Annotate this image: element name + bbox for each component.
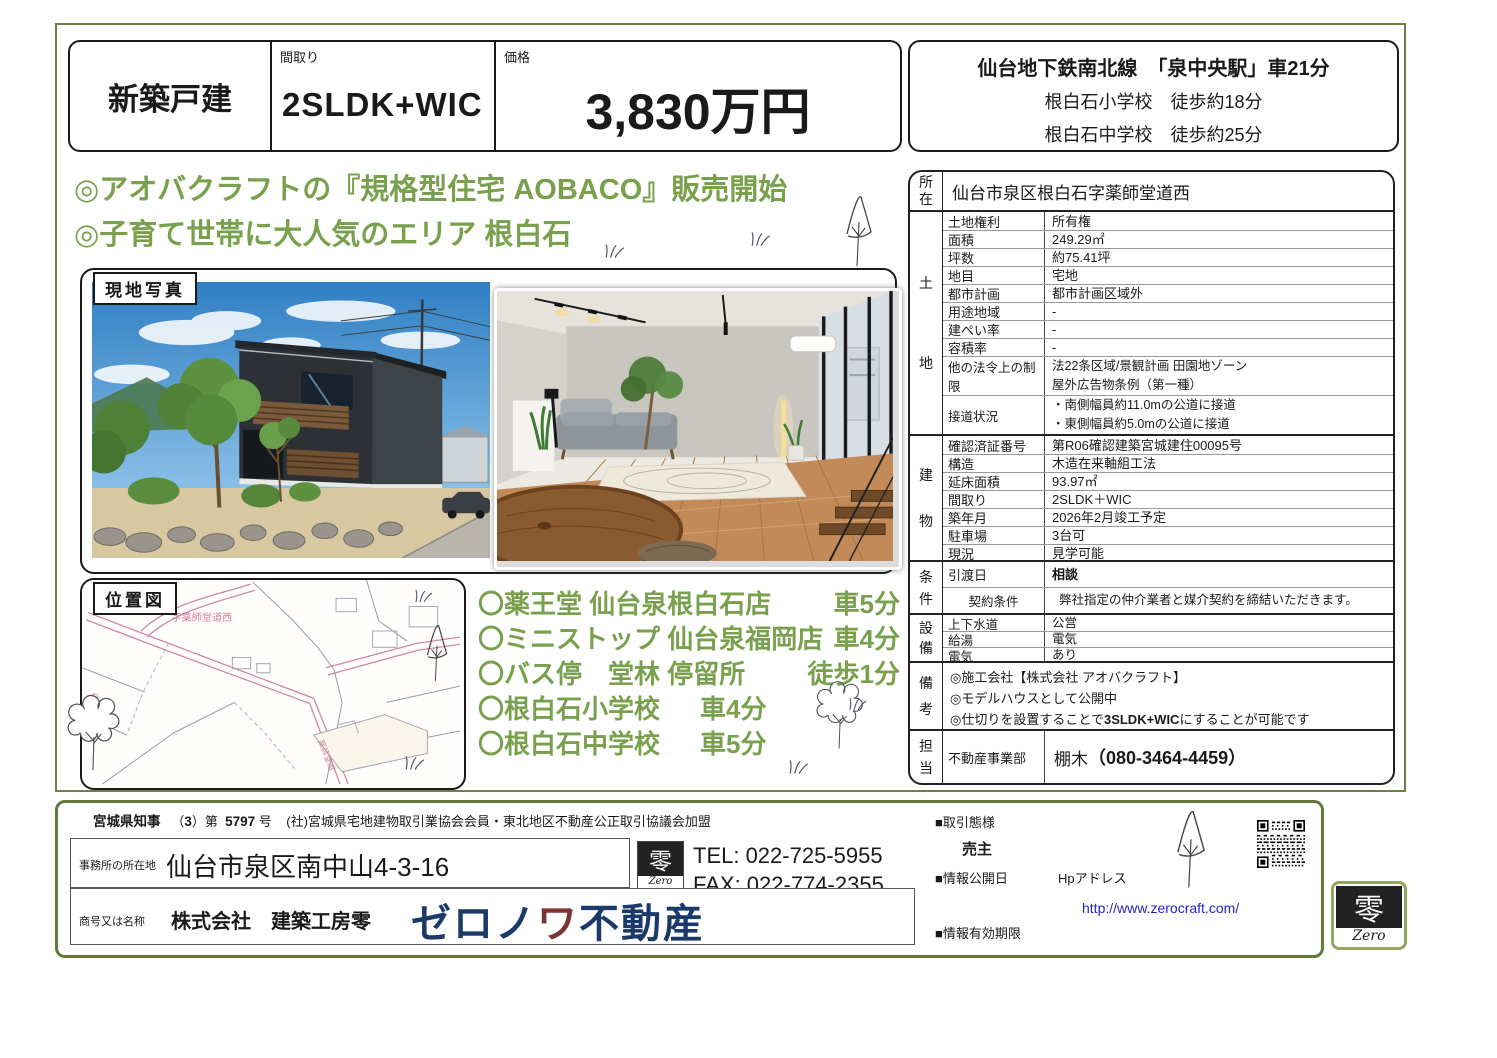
spec-value: - bbox=[1045, 303, 1393, 320]
spec-value: 木造在来軸組工法 bbox=[1045, 455, 1393, 472]
spec-value: 2026年2月竣工予定 bbox=[1045, 509, 1393, 526]
nearby-time: 車4分 bbox=[700, 689, 766, 726]
spec-key: 土地権利 bbox=[943, 212, 1045, 230]
tree-sketch-icon bbox=[1168, 804, 1214, 892]
floorplan-value: 2SLDK+WIC bbox=[282, 86, 483, 124]
spec-key: 給湯 bbox=[943, 632, 1045, 647]
zero-kanji: 零 bbox=[1336, 886, 1402, 928]
nearby-name: 〇バス停 堂林 停留所 bbox=[478, 659, 745, 689]
spec-value: - bbox=[1045, 339, 1393, 356]
grass-sketch-icon bbox=[414, 590, 434, 602]
info-date-label: ■情報公開日 bbox=[935, 868, 1008, 887]
spec-value: 第R06確認建築宮城建住00095号 bbox=[1045, 436, 1393, 454]
spec-value: - bbox=[1045, 321, 1393, 338]
zero-logo-small: 零 Zero bbox=[637, 841, 684, 890]
floorplan-cell: 間取り 2SLDK+WIC bbox=[272, 42, 496, 150]
expiry-label: ■情報有効期限 bbox=[935, 923, 1021, 942]
spec-key: 引渡日 bbox=[943, 562, 1045, 587]
spec-key: 築年月 bbox=[943, 509, 1045, 526]
grass-sketch-icon bbox=[404, 756, 426, 770]
zero-logo-large: 零 Zero bbox=[1331, 881, 1407, 950]
site-photo-tag: 現地写真 bbox=[93, 272, 197, 305]
tree-sketch-icon bbox=[812, 680, 870, 754]
price-value: 3,830万円 bbox=[496, 72, 900, 144]
spec-key: 都市計画 bbox=[943, 285, 1045, 302]
nearby-time: 車5分 bbox=[834, 584, 900, 621]
membership-text: (社)宮城県宅地建物取引業協会会員・東北地区不動産公正取引協議会加盟 bbox=[286, 814, 711, 829]
access-line-station: 仙台地下鉄南北線 「泉中央駅」車21分 bbox=[910, 52, 1397, 81]
flyer-page: 新築戸建 間取り 2SLDK+WIC 価格 3,830万円 仙台地下鉄南北線 「… bbox=[0, 0, 1497, 1058]
nearby-time: 車4分 bbox=[834, 619, 900, 656]
tree-sketch-icon bbox=[838, 190, 880, 270]
floorplan-label: 間取り bbox=[280, 47, 319, 66]
spec-group-remarks: 備考 ◎施工会社【株式会社 アオバクラフト】 ◎モデルハウスとして公開中 ◎仕切… bbox=[910, 661, 1393, 729]
spec-location-value: 仙台市泉区根白石字薬師堂道西 bbox=[943, 172, 1393, 210]
spec-group-land: 土地 土地権利所有権 面積249.29㎡ 坪数約75.41坪 地目宅地 都市計画… bbox=[910, 210, 1393, 434]
spec-value: 弊社指定の仲介業者と媒介契約を締結いただきます。 bbox=[1045, 588, 1393, 613]
spec-key: 用途地域 bbox=[943, 303, 1045, 320]
list-item: 〇薬王堂 仙台泉根白石店 車5分 bbox=[478, 584, 900, 619]
header-box: 新築戸建 間取り 2SLDK+WIC 価格 3,830万円 bbox=[68, 40, 902, 152]
qr-code bbox=[1257, 820, 1305, 868]
interior-photo bbox=[497, 291, 893, 561]
website-link[interactable]: http://www.zerocraft.com/ bbox=[1082, 900, 1239, 916]
deal-type-value: 売主 bbox=[962, 838, 992, 859]
access-line-elementary: 根白石小学校 徒歩約18分 bbox=[910, 88, 1397, 114]
nearby-name: 〇薬王堂 仙台泉根白石店 bbox=[478, 589, 771, 619]
spec-value: 法22条区域/景観計画 田園地ゾーン 屋外広告物条例（第一種） bbox=[1045, 357, 1393, 395]
remarks-text: ◎施工会社【株式会社 アオバクラフト】 ◎モデルハウスとして公開中 ◎仕切りを設… bbox=[943, 663, 1393, 729]
brand-logo-text: ゼロノワ不動産 bbox=[411, 891, 705, 949]
list-item: 〇ミニストップ 仙台泉福岡店 車4分 bbox=[478, 619, 900, 654]
spec-key: 地目 bbox=[943, 267, 1045, 284]
spec-key: 建ぺい率 bbox=[943, 321, 1045, 338]
zero-latin: Zero bbox=[1336, 928, 1402, 946]
office-address-value: 仙台市泉区南中山4-3-16 bbox=[166, 847, 449, 884]
staff-dept: 不動産事業部 bbox=[943, 731, 1045, 783]
grass-sketch-icon bbox=[848, 698, 868, 710]
grass-sketch-icon bbox=[788, 760, 810, 774]
price-label: 価格 bbox=[504, 47, 530, 66]
tree-sketch-icon bbox=[418, 620, 456, 684]
spec-key: 延床面積 bbox=[943, 473, 1045, 490]
remarks-line: ◎モデルハウスとして公開中 bbox=[950, 688, 1393, 709]
location-map-tag: 位置図 bbox=[93, 582, 177, 615]
spec-location-label: 所在 bbox=[919, 174, 934, 208]
company-name-value: 株式会社 建築工房零 bbox=[171, 905, 371, 934]
license-line: 宮城県知事 （3）第 5797 号 (社)宮城県宅地建物取引業協会会員・東北地区… bbox=[93, 810, 711, 830]
spec-value: 3台可 bbox=[1045, 527, 1393, 544]
spec-key: 坪数 bbox=[943, 249, 1045, 266]
group-label: 担当 bbox=[919, 735, 934, 779]
zero-kanji: 零 bbox=[638, 842, 683, 876]
nearby-time: 車5分 bbox=[700, 724, 766, 761]
group-label: 備考 bbox=[919, 670, 934, 722]
spec-key: 構造 bbox=[943, 455, 1045, 472]
access-line-junior-high: 根白石中学校 徒歩約25分 bbox=[910, 121, 1397, 147]
nearby-name: 〇根白石小学校 bbox=[478, 694, 660, 724]
spec-value: 都市計画区域外 bbox=[1045, 285, 1393, 302]
interior-photo-frame bbox=[494, 288, 902, 570]
spec-location-row: 所在 仙台市泉区根白石字薬師堂道西 bbox=[910, 172, 1393, 210]
grass-sketch-icon bbox=[604, 244, 626, 258]
headline-1: ◎アオバクラフトの『規格型住宅 AOBACO』販売開始 bbox=[74, 166, 787, 208]
spec-value: ・南側幅員約11.0mの公道に接道 ・東側幅員約5.0mの公道に接道 bbox=[1045, 396, 1393, 434]
spec-key: 上下水道 bbox=[943, 615, 1045, 631]
spec-value: 相談 bbox=[1045, 562, 1393, 587]
nearby-name: 〇ミニストップ 仙台泉福岡店 bbox=[478, 624, 823, 654]
spec-group-utilities: 設備 上下水道公営 給湯電気 電気あり bbox=[910, 613, 1393, 661]
deal-type-label: ■取引態様 bbox=[935, 812, 995, 831]
company-name-box: 商号又は名称 株式会社 建築工房零 ゼロノワ不動産 bbox=[70, 888, 915, 945]
spec-table: 所在 仙台市泉区根白石字薬師堂道西 土地 土地権利所有権 面積249.29㎡ 坪… bbox=[908, 170, 1395, 785]
group-label: 設備 bbox=[919, 618, 934, 658]
spec-key: 確認済証番号 bbox=[943, 436, 1045, 454]
spec-value: 249.29㎡ bbox=[1045, 231, 1393, 248]
spec-group-staff: 担当 不動産事業部 棚木（080-3464-4459） bbox=[910, 729, 1393, 783]
group-label: 土地 bbox=[919, 243, 934, 403]
spec-value: 約75.41坪 bbox=[1045, 249, 1393, 266]
tree-sketch-icon bbox=[66, 692, 124, 778]
office-address-label: 事務所の所在地 bbox=[79, 857, 156, 873]
exterior-photo bbox=[92, 282, 490, 558]
headline-2: ◎子育て世帯に大人気のエリア 根白石 bbox=[74, 211, 571, 253]
grass-sketch-icon bbox=[750, 232, 772, 246]
price-cell: 価格 3,830万円 bbox=[496, 42, 900, 150]
map-area-text: 字薬師堂道西 bbox=[171, 611, 232, 624]
office-address-box: 事務所の所在地 仙台市泉区南中山4-3-16 bbox=[70, 838, 630, 888]
spec-key: 間取り bbox=[943, 491, 1045, 508]
group-label: 条件 bbox=[919, 566, 934, 610]
nearby-name: 〇根白石中学校 bbox=[478, 729, 660, 759]
staff-contact: 棚木（080-3464-4459） bbox=[1045, 731, 1393, 783]
spec-value: 宅地 bbox=[1045, 267, 1393, 284]
company-name-label: 商号又は名称 bbox=[79, 913, 145, 929]
spec-value: 2SLDK＋WIC bbox=[1045, 491, 1393, 508]
spec-group-building: 建物 確認済証番号第R06確認建築宮城建住00095号 構造木造在来軸組工法 延… bbox=[910, 434, 1393, 560]
spec-key: 他の法令上の制限 bbox=[943, 357, 1045, 395]
spec-key: 面積 bbox=[943, 231, 1045, 248]
tel-number: TEL: 022-725-5955 bbox=[693, 843, 883, 869]
group-label: 建物 bbox=[919, 452, 934, 544]
spec-key: 駐車場 bbox=[943, 527, 1045, 544]
spec-key: 接道状況 bbox=[943, 396, 1045, 434]
remarks-line: ◎施工会社【株式会社 アオバクラフト】 bbox=[950, 667, 1393, 688]
spec-value: 93.97㎡ bbox=[1045, 473, 1393, 490]
hp-address-label: Hpアドレス bbox=[1058, 868, 1127, 887]
spec-key: 容積率 bbox=[943, 339, 1045, 356]
spec-value: 公営 bbox=[1045, 615, 1393, 631]
spec-value: 電気 bbox=[1045, 632, 1393, 647]
access-box: 仙台地下鉄南北線 「泉中央駅」車21分 根白石小学校 徒歩約18分 根白石中学校… bbox=[908, 40, 1399, 152]
property-category: 新築戸建 bbox=[70, 42, 272, 150]
spec-value: 所有権 bbox=[1045, 212, 1393, 230]
spec-group-conditions: 条件 引渡日相談 契約条件弊社指定の仲介業者と媒介契約を締結いただきます。 bbox=[910, 560, 1393, 613]
remarks-line: ◎仕切りを設置することで3SLDK+WICにすることが可能です bbox=[950, 709, 1393, 730]
spec-key: 契約条件 bbox=[943, 588, 1045, 613]
